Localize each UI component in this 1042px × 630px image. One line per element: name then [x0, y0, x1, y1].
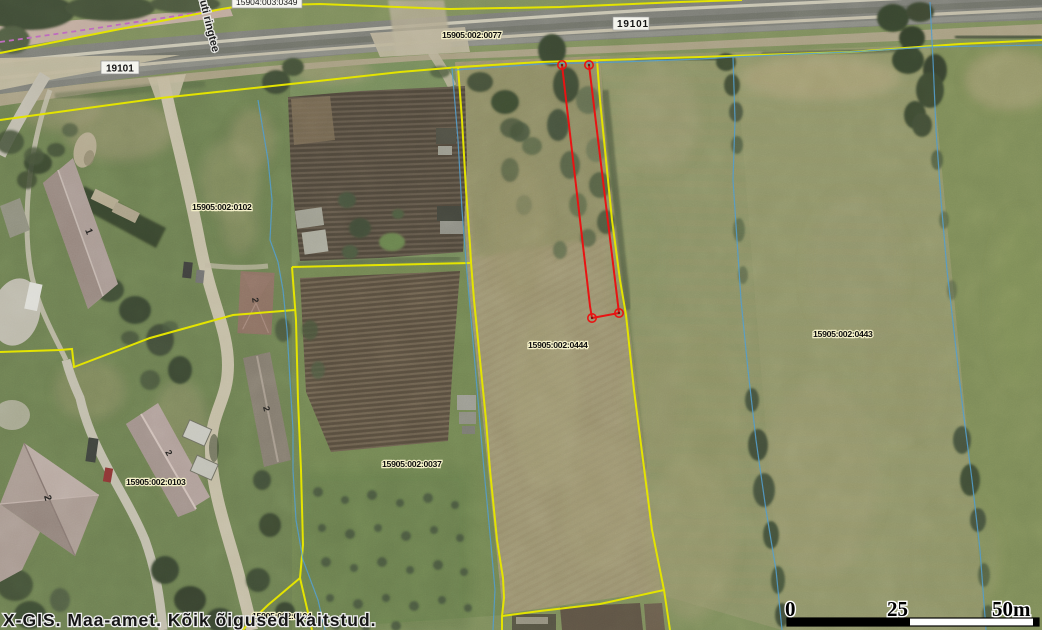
svg-text:25: 25 — [887, 597, 908, 621]
svg-text:50m: 50m — [992, 597, 1031, 621]
svg-text:X-GIS. Maa-amet. Kõik õigused: X-GIS. Maa-amet. Kõik õigused kaitstud. — [3, 610, 377, 630]
svg-text:0: 0 — [785, 597, 796, 621]
